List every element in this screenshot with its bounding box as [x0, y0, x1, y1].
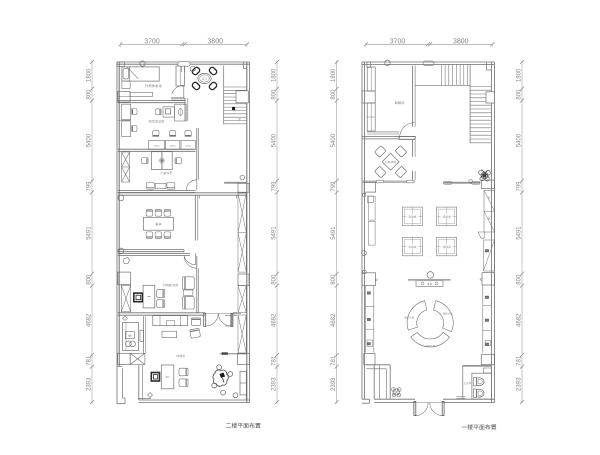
- svg-text:781: 781: [87, 355, 93, 366]
- svg-text:799: 799: [331, 181, 337, 192]
- svg-text:茶几: 茶几: [202, 77, 208, 81]
- svg-text:781: 781: [331, 355, 337, 366]
- svg-text:洽谈桌: 洽谈桌: [442, 245, 451, 249]
- svg-text:5491: 5491: [517, 226, 523, 240]
- svg-text:2393: 2393: [331, 377, 337, 391]
- svg-text:2393: 2393: [87, 377, 93, 391]
- svg-text:洽谈桌: 洽谈桌: [442, 215, 451, 219]
- svg-text:外宾休息室: 外宾休息室: [145, 83, 163, 88]
- svg-text:1800: 1800: [272, 68, 278, 82]
- svg-text:800: 800: [517, 274, 523, 285]
- svg-text:800: 800: [87, 89, 93, 100]
- svg-text:5491: 5491: [87, 226, 93, 240]
- svg-text:··: ··: [428, 254, 430, 258]
- svg-text:799: 799: [517, 181, 523, 192]
- svg-text:2393: 2393: [517, 377, 523, 391]
- svg-text:800: 800: [331, 274, 337, 285]
- svg-text:1800: 1800: [517, 68, 523, 82]
- svg-text:1800: 1800: [87, 68, 93, 82]
- svg-text:4682: 4682: [87, 313, 93, 327]
- svg-text:公务接待: 公务接待: [385, 160, 396, 164]
- svg-text:洽谈桌: 洽谈桌: [408, 245, 417, 249]
- svg-text:781: 781: [272, 355, 278, 366]
- svg-text:5491: 5491: [272, 226, 278, 240]
- svg-text:4682: 4682: [517, 313, 523, 327]
- svg-text:5400: 5400: [87, 133, 93, 147]
- svg-text:800: 800: [87, 274, 93, 285]
- svg-text:5400: 5400: [517, 133, 523, 147]
- svg-text:799: 799: [272, 181, 278, 192]
- svg-text:5400: 5400: [331, 133, 337, 147]
- svg-text:弧形沙发: 弧形沙发: [404, 315, 414, 319]
- svg-text:wiltlw: wiltlw: [170, 144, 176, 148]
- svg-text:讲台: 讲台: [427, 282, 433, 286]
- svg-text:3700: 3700: [144, 38, 160, 45]
- svg-text:3800: 3800: [453, 38, 469, 45]
- svg-text:餐桌: 餐桌: [155, 221, 161, 226]
- svg-text:5400: 5400: [272, 133, 278, 147]
- svg-text:800: 800: [331, 89, 337, 100]
- svg-text:弧形沙发: 弧形沙发: [443, 311, 453, 315]
- svg-text:小会议室: 小会议室: [160, 170, 172, 175]
- svg-text:弧形沙发: 弧形沙发: [425, 344, 435, 348]
- svg-text:2393: 2393: [272, 377, 278, 391]
- svg-text:1800: 1800: [331, 68, 337, 82]
- svg-text:wiltlw: wiltlw: [185, 144, 191, 148]
- svg-text:鞋帽间: 鞋帽间: [395, 100, 405, 105]
- svg-text:781: 781: [517, 355, 523, 366]
- svg-text:二楼平面布置: 二楼平面布置: [226, 422, 261, 430]
- svg-text:一楼平面布置: 一楼平面布置: [461, 423, 496, 431]
- svg-text:800: 800: [272, 274, 278, 285]
- svg-text:卫生间: 卫生间: [463, 381, 471, 385]
- svg-text:799: 799: [87, 181, 93, 192]
- svg-text:3700: 3700: [390, 38, 406, 45]
- svg-text:综合办公区: 综合办公区: [149, 118, 166, 123]
- svg-text:wiltlw: wiltlw: [153, 144, 159, 148]
- svg-text:800: 800: [272, 89, 278, 100]
- svg-text:5491: 5491: [331, 226, 337, 240]
- svg-text:行政秘书室: 行政秘书室: [163, 282, 178, 287]
- svg-text:4682: 4682: [272, 313, 278, 327]
- svg-text:休闲区: 休闲区: [176, 353, 185, 358]
- svg-text:下: 下: [238, 117, 241, 121]
- svg-text:3800: 3800: [207, 38, 223, 45]
- svg-text:4682: 4682: [331, 313, 337, 327]
- svg-text:洽谈桌: 洽谈桌: [408, 215, 417, 219]
- svg-text:800: 800: [517, 89, 523, 100]
